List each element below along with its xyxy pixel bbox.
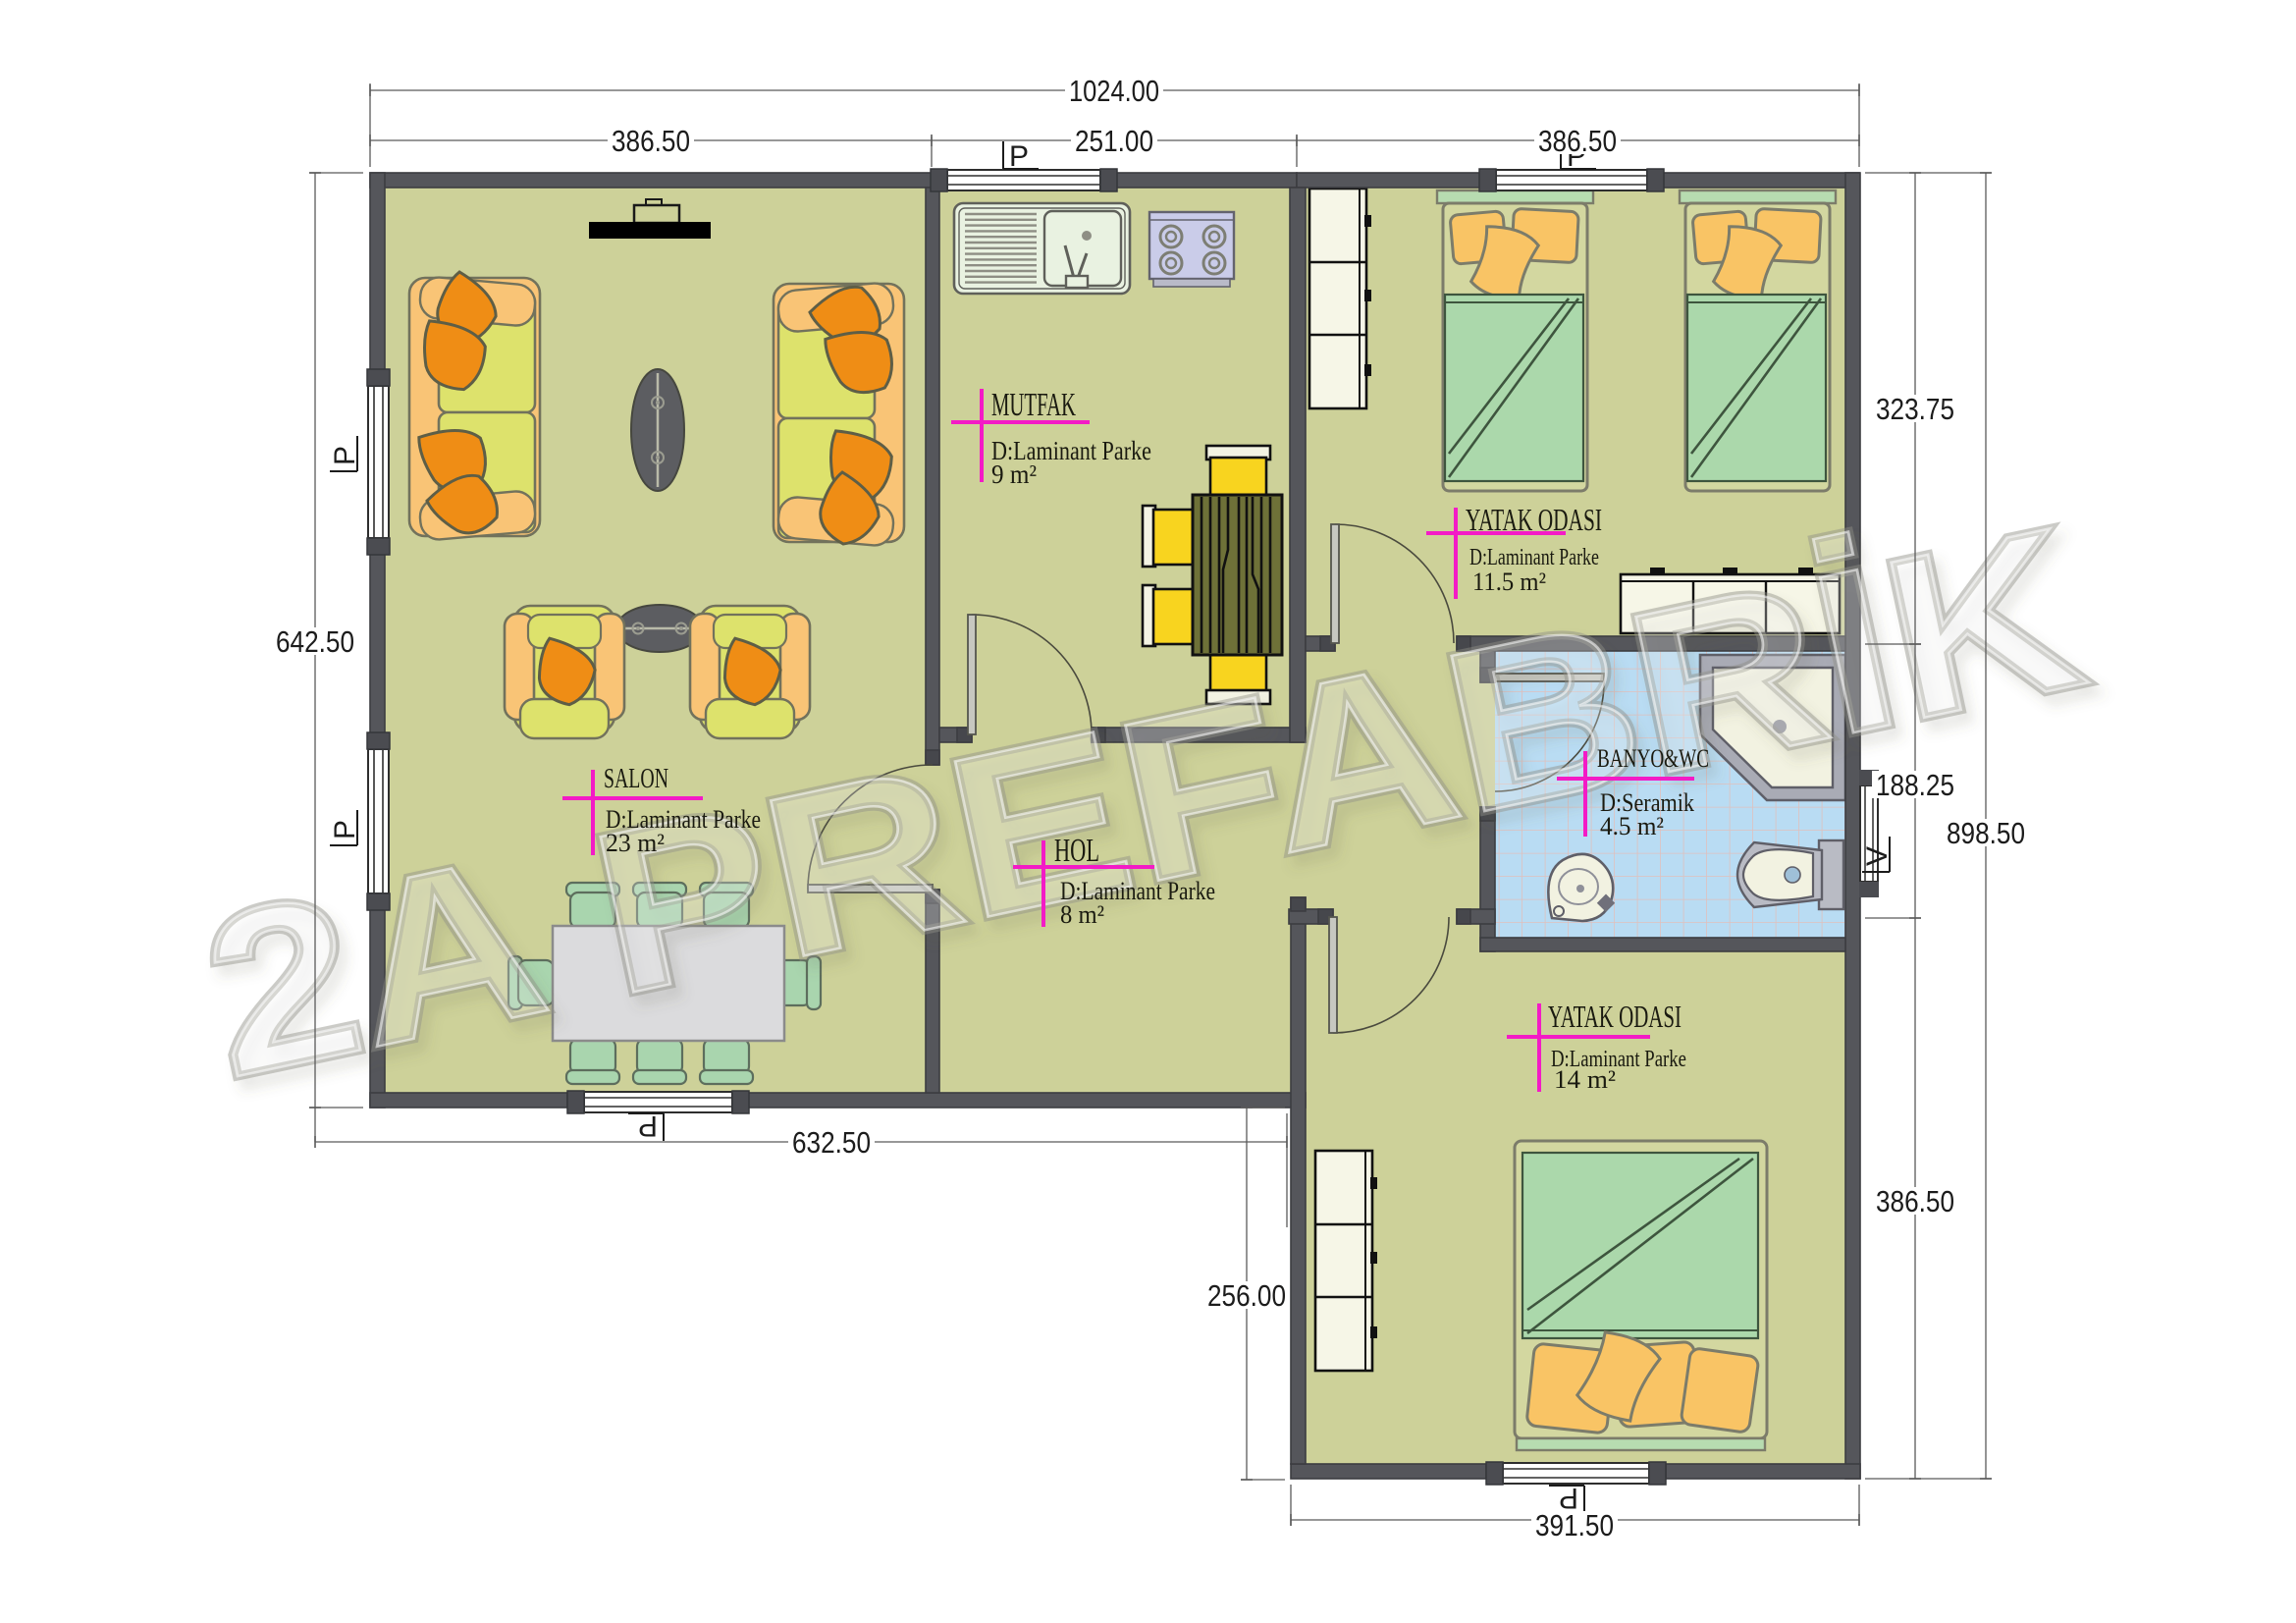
svg-text:4.5 m²: 4.5 m² bbox=[1600, 812, 1664, 840]
svg-text:BANYO&WC: BANYO&WC bbox=[1597, 744, 1709, 773]
svg-text:188.25: 188.25 bbox=[1876, 768, 1954, 802]
svg-text:8 m²: 8 m² bbox=[1060, 900, 1104, 929]
svg-text:23 m²: 23 m² bbox=[606, 829, 665, 857]
svg-text:P: P bbox=[1009, 140, 1029, 173]
svg-text:386.50: 386.50 bbox=[1538, 124, 1617, 158]
svg-text:MUTFAK: MUTFAK bbox=[991, 387, 1076, 423]
svg-text:P: P bbox=[638, 1109, 658, 1142]
svg-text:9 m²: 9 m² bbox=[991, 460, 1037, 489]
svg-text:11.5 m²: 11.5 m² bbox=[1472, 568, 1546, 596]
svg-text:256.00: 256.00 bbox=[1207, 1278, 1286, 1313]
svg-text:632.50: 632.50 bbox=[792, 1125, 871, 1160]
svg-text:323.75: 323.75 bbox=[1876, 392, 1954, 426]
svg-text:386.50: 386.50 bbox=[612, 124, 690, 158]
svg-text:391.50: 391.50 bbox=[1535, 1508, 1614, 1542]
svg-text:SALON: SALON bbox=[604, 764, 668, 794]
svg-text:14 m²: 14 m² bbox=[1554, 1065, 1616, 1094]
svg-text:642.50: 642.50 bbox=[276, 624, 354, 659]
svg-text:251.00: 251.00 bbox=[1075, 124, 1153, 158]
svg-text:V: V bbox=[1861, 846, 1894, 866]
svg-text:HOL: HOL bbox=[1054, 833, 1099, 869]
svg-text:YATAK ODASI: YATAK ODASI bbox=[1548, 999, 1682, 1034]
svg-text:898.50: 898.50 bbox=[1947, 816, 2025, 850]
svg-text:P: P bbox=[329, 446, 361, 465]
svg-text:1024.00: 1024.00 bbox=[1069, 74, 1159, 108]
svg-text:386.50: 386.50 bbox=[1876, 1184, 1954, 1218]
svg-text:YATAK ODASI: YATAK ODASI bbox=[1466, 502, 1602, 537]
